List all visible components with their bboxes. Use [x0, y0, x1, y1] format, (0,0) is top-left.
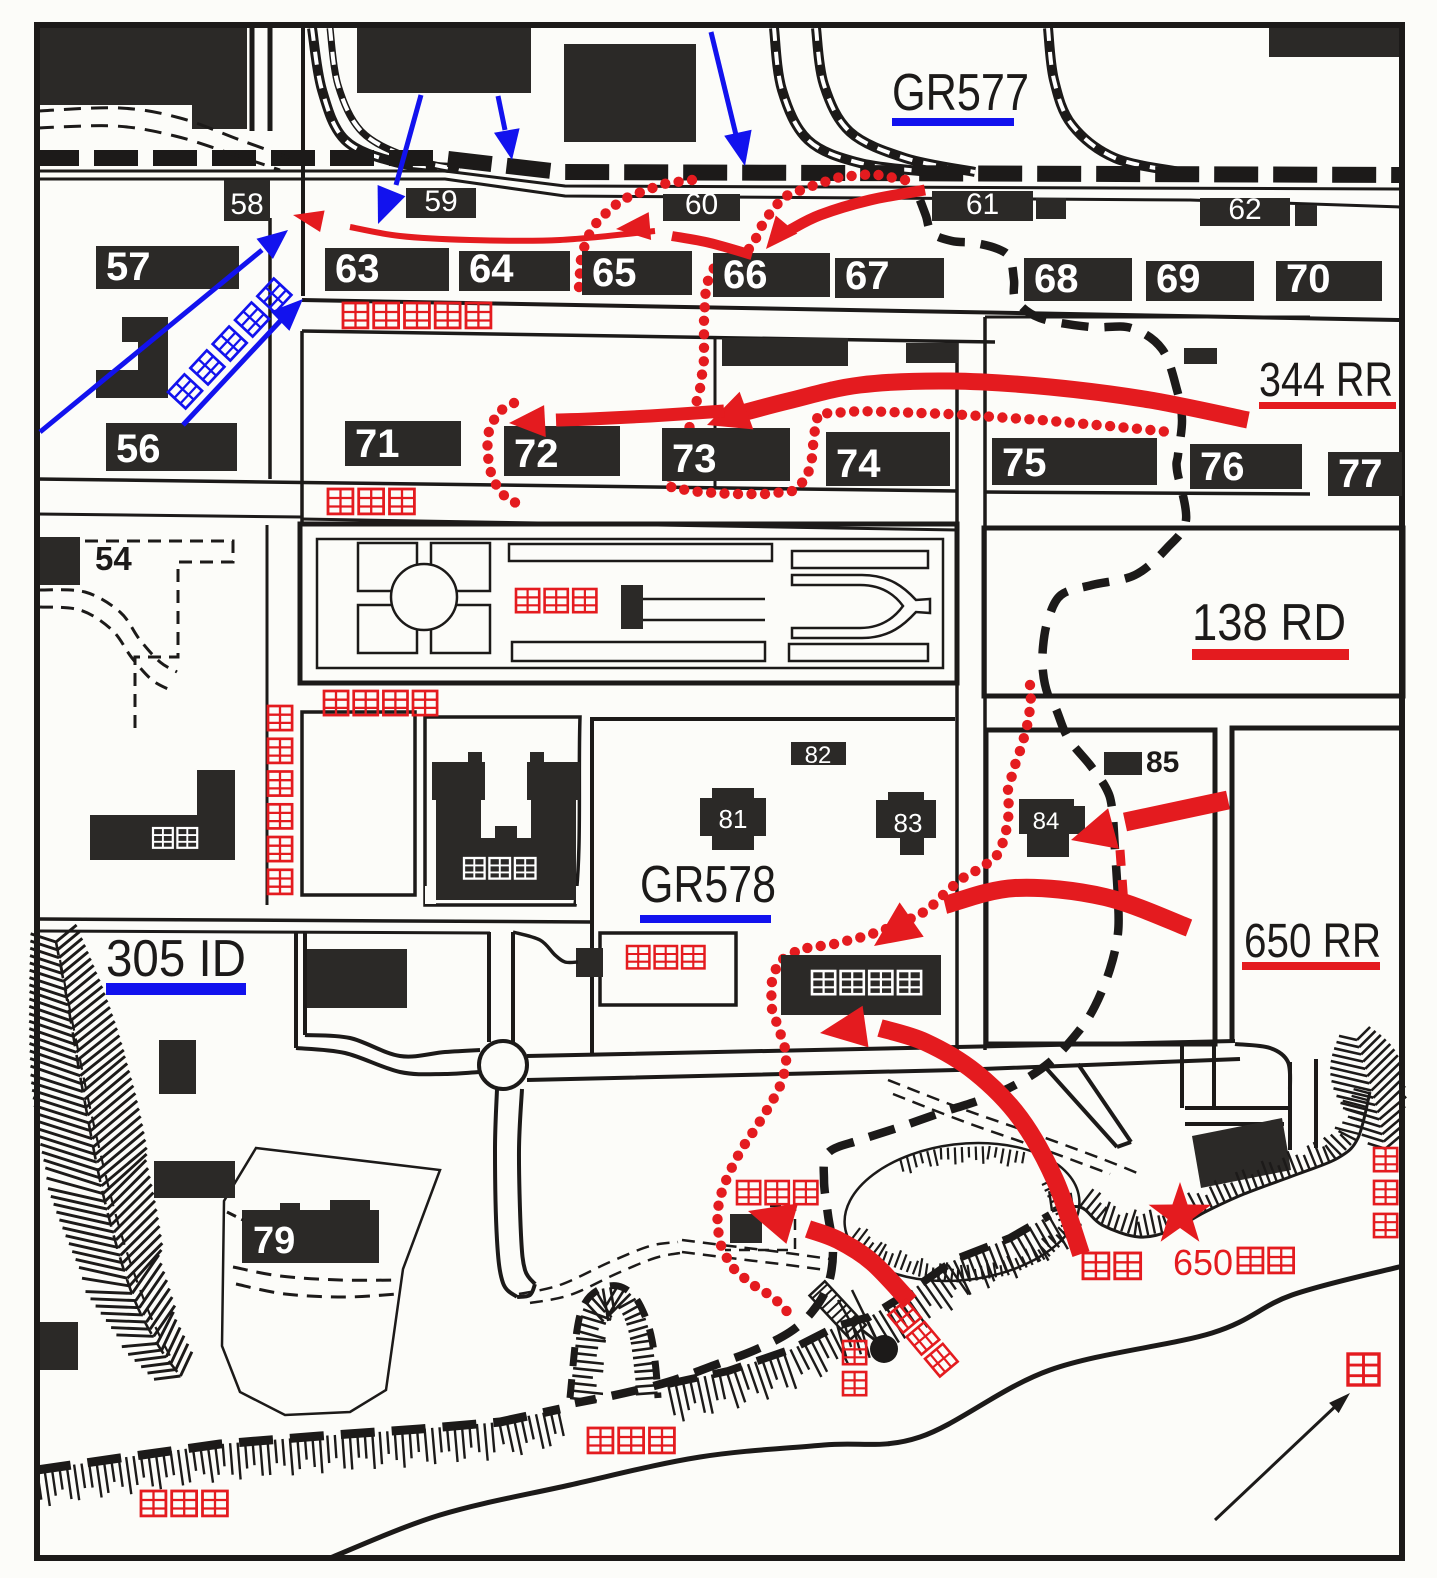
svg-text:57: 57: [106, 245, 151, 289]
svg-text:GR578: GR578: [640, 856, 776, 914]
svg-text:75: 75: [1002, 441, 1047, 485]
svg-text:67: 67: [845, 254, 890, 298]
svg-text:77: 77: [1338, 452, 1383, 496]
svg-text:66: 66: [723, 253, 768, 297]
svg-text:74: 74: [836, 442, 881, 486]
svg-text:69: 69: [1156, 257, 1201, 301]
svg-text:70: 70: [1286, 257, 1331, 301]
svg-text:650 RR: 650 RR: [1244, 915, 1381, 968]
svg-text:61: 61: [966, 188, 999, 221]
svg-text:73: 73: [672, 437, 717, 481]
svg-text:64: 64: [469, 247, 514, 291]
svg-text:59: 59: [424, 185, 457, 218]
svg-text:68: 68: [1034, 257, 1079, 301]
svg-text:63: 63: [335, 247, 380, 291]
svg-text:60: 60: [685, 188, 718, 221]
svg-text:GR577: GR577: [892, 64, 1029, 122]
svg-text:344 RR: 344 RR: [1259, 354, 1393, 407]
svg-text:71: 71: [355, 422, 400, 466]
svg-text:83: 83: [894, 808, 923, 838]
svg-text:81: 81: [719, 804, 748, 834]
svg-text:56: 56: [116, 427, 161, 471]
svg-text:79: 79: [253, 1220, 295, 1262]
svg-text:72: 72: [514, 432, 559, 476]
svg-text:84: 84: [1033, 808, 1060, 835]
svg-text:305 ID: 305 ID: [106, 930, 246, 988]
svg-text:650: 650: [1173, 1242, 1233, 1283]
svg-text:58: 58: [230, 188, 263, 221]
svg-text:76: 76: [1200, 445, 1245, 489]
svg-text:62: 62: [1228, 193, 1261, 226]
svg-text:138 RD: 138 RD: [1192, 594, 1346, 652]
svg-text:82: 82: [805, 742, 832, 769]
svg-text:65: 65: [592, 251, 637, 295]
svg-text:85: 85: [1146, 746, 1179, 779]
svg-text:54: 54: [95, 540, 132, 577]
